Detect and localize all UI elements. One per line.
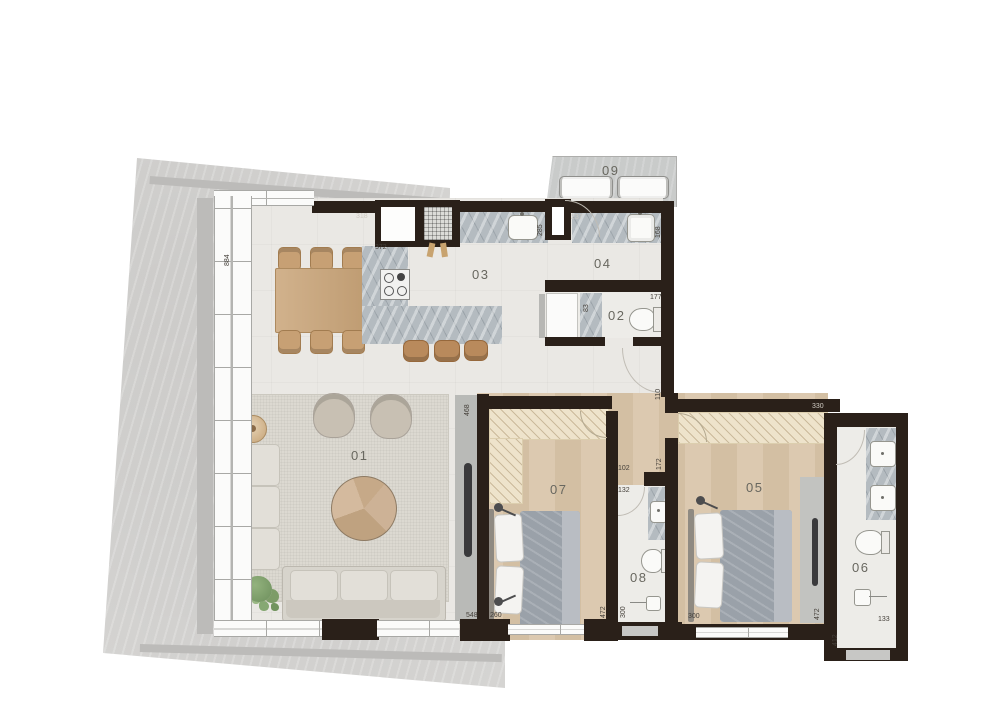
bath8-drain — [657, 509, 660, 512]
room2-closet — [546, 293, 578, 340]
cooktop-burner — [397, 286, 407, 296]
dim-102: 102 — [618, 465, 630, 472]
dim-172: 172 — [656, 458, 663, 470]
wall — [455, 201, 548, 212]
room-label-07: 07 — [550, 482, 567, 497]
bed-bedroom5-pillow — [694, 512, 724, 559]
room-label-01: 01 — [351, 448, 368, 463]
dim-133: 133 — [878, 616, 890, 623]
bar-stool — [403, 340, 429, 362]
ac-unit-2 — [617, 176, 669, 199]
dim-132: 132 — [618, 487, 630, 494]
window-bottom-2 — [377, 620, 459, 637]
cooktop-burner — [384, 286, 394, 296]
dim-110: 110 — [655, 389, 662, 400]
bed-bedroom5-pillow — [694, 561, 724, 608]
wall-bath8-top — [644, 472, 670, 486]
wall-bottom-chunk — [322, 619, 379, 640]
dim-285: 285 — [537, 224, 544, 236]
room-label-04: 04 — [594, 256, 611, 271]
dim-260: 260 — [490, 612, 502, 619]
slab-curb-left — [197, 198, 213, 634]
kitchen-faucet — [520, 212, 524, 216]
bed-bedroom7-runner — [562, 511, 580, 629]
wall-bath8-top — [606, 472, 618, 486]
wall-right-lower — [661, 345, 674, 397]
wall-room2-top — [545, 280, 668, 292]
bar-stool — [464, 340, 488, 361]
door-leaf-04 — [552, 207, 564, 235]
room-label-06: 06 — [852, 560, 869, 575]
wall-corridor-east — [606, 411, 618, 634]
bath8-window — [622, 626, 658, 636]
bath6-window — [846, 650, 890, 660]
dining-chair — [278, 330, 301, 354]
armchair-1 — [313, 393, 355, 438]
bath6-drain — [881, 496, 884, 499]
dim-468: 468 — [464, 404, 471, 416]
armchair-2 — [370, 394, 412, 439]
dim-237: 237 — [571, 214, 583, 221]
room2-sink-counter — [580, 293, 602, 338]
wall-bed7-top — [477, 396, 612, 409]
room-label-03: 03 — [472, 267, 489, 282]
window-left — [214, 196, 252, 632]
wall — [545, 337, 605, 346]
bed-bedroom7-pillow — [494, 565, 524, 614]
wall — [312, 201, 382, 213]
coffee-table — [331, 476, 397, 541]
bed7-window — [508, 624, 586, 635]
wardrobe-bedroom7-return — [489, 438, 523, 504]
sofa-main-backrest — [286, 600, 440, 618]
bed-bedroom5-runner — [774, 510, 792, 622]
cooktop-burner — [397, 273, 405, 281]
sofa-main-cushion — [340, 570, 388, 601]
tv-bedroom5 — [812, 518, 818, 586]
dim-330: 330 — [812, 403, 824, 410]
bed-bedroom5-headboard — [688, 509, 694, 622]
bath6-shower-arm — [869, 596, 887, 597]
wall-bed7-left — [477, 394, 489, 634]
tv-bedroom7 — [464, 463, 472, 557]
kitchen-island-bar — [362, 306, 502, 344]
wall-bath6-right — [896, 413, 908, 661]
room2-toilet-bowl — [629, 308, 655, 331]
dim-412: 412 — [832, 634, 839, 646]
room-label-05: 05 — [746, 480, 763, 495]
dining-chair — [310, 330, 333, 354]
bath8-shower — [646, 596, 661, 611]
room-label-09: 09 — [602, 163, 619, 178]
kitchen-sink — [508, 215, 538, 240]
dim-300-a: 300 — [620, 606, 627, 618]
dining-table — [275, 268, 369, 333]
dim-177: 177 — [650, 294, 662, 301]
dim-83: 83 — [583, 304, 590, 312]
bath6-toilet-bowl — [855, 530, 883, 555]
bath8-shower-arm — [630, 602, 646, 603]
laundry-tank — [627, 214, 655, 242]
wall-05-08 — [665, 438, 678, 635]
dim-300-b: 300 — [688, 613, 700, 620]
floor-plan: 01 02 03 04 05 06 07 08 09 884 318 372 2… — [0, 0, 1008, 715]
dim-472-b: 472 — [814, 608, 821, 620]
window-bottom-1 — [214, 620, 324, 637]
bath6-drain — [881, 452, 884, 455]
bath6-shower — [854, 589, 871, 606]
wall-right — [661, 201, 674, 347]
dim-318: 318 — [356, 213, 368, 220]
dim-168: 168 — [655, 226, 662, 238]
sofa-main-cushion — [390, 570, 438, 601]
room-label-02: 02 — [608, 308, 625, 323]
cooktop-burner — [384, 273, 394, 283]
ac-unit-1 — [559, 176, 613, 199]
dim-372: 372 — [375, 244, 387, 251]
dim-548: 548 — [466, 612, 478, 619]
dim-472-a: 472 — [600, 606, 607, 618]
room-label-08: 08 — [630, 570, 647, 585]
room2-door-leaf — [539, 294, 545, 338]
bed-bedroom7-pillow — [494, 513, 524, 562]
dim-884: 884 — [224, 254, 231, 266]
sofa-main-cushion — [290, 570, 338, 601]
fridge-niche — [381, 207, 415, 241]
bath6-toilet-tank — [881, 531, 890, 554]
wall-bed7-bottom — [460, 619, 510, 641]
bed5-window — [696, 627, 788, 638]
pantry-cabinet — [424, 207, 452, 240]
bar-stool — [434, 340, 460, 362]
